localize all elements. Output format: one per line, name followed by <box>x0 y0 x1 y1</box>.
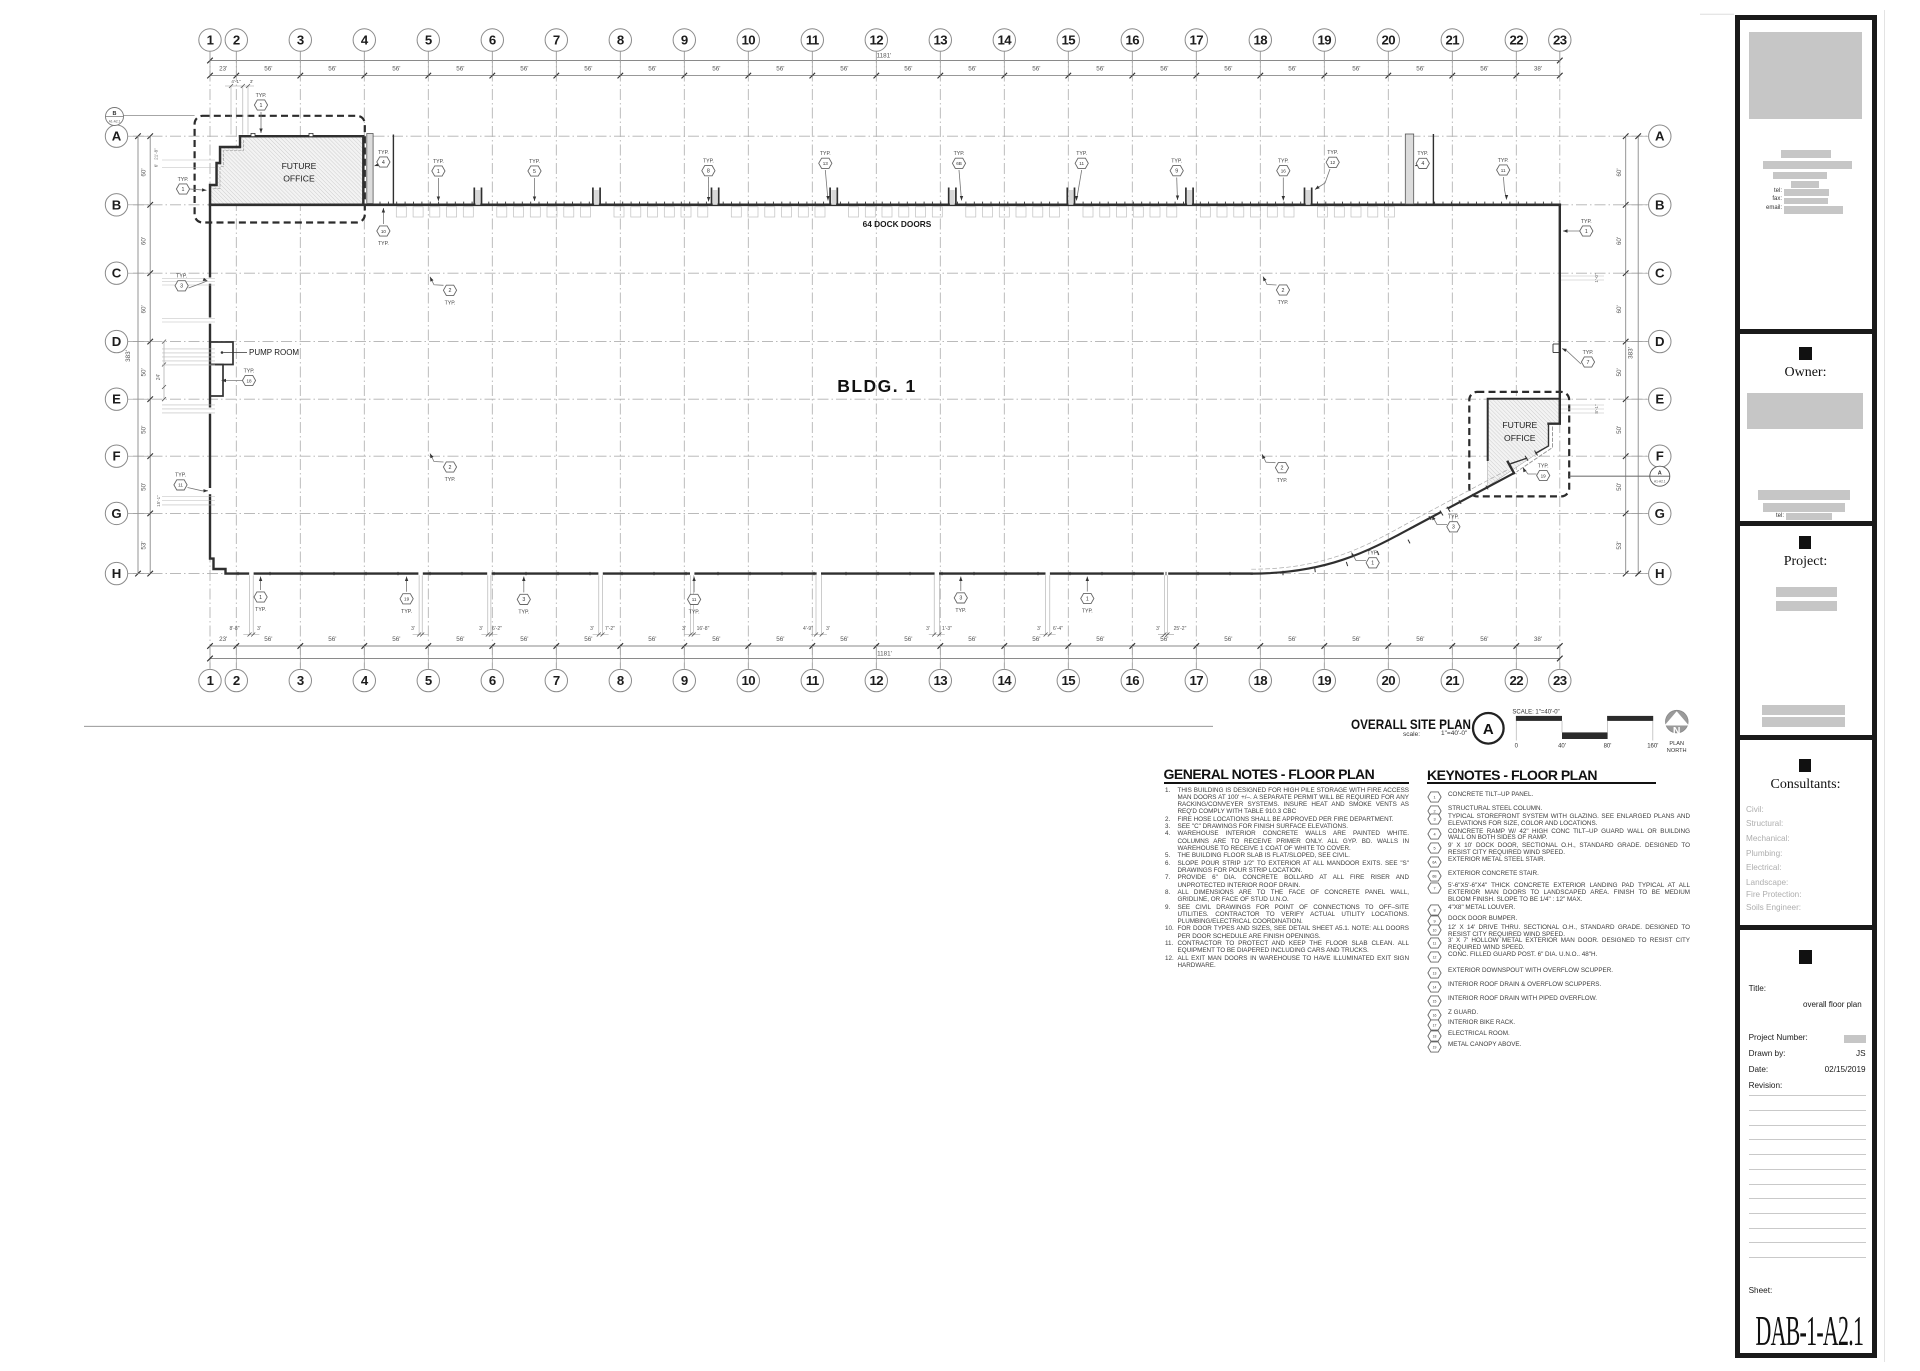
svg-text:50': 50' <box>1616 426 1623 434</box>
svg-text:21: 21 <box>1445 33 1459 48</box>
svg-text:E: E <box>112 392 121 407</box>
svg-text:3': 3' <box>411 626 415 632</box>
svg-text:3: 3 <box>522 597 525 603</box>
svg-text:56': 56' <box>968 65 976 72</box>
svg-text:60': 60' <box>1616 237 1623 245</box>
svg-text:56': 56' <box>1032 65 1040 72</box>
svg-text:4: 4 <box>1433 832 1435 836</box>
svg-text:2: 2 <box>449 465 452 471</box>
svg-text:3': 3' <box>590 626 594 632</box>
svg-text:7: 7 <box>553 673 560 688</box>
svg-text:18: 18 <box>1253 33 1267 48</box>
svg-text:23': 23' <box>219 65 227 72</box>
svg-text:19: 19 <box>1317 673 1331 688</box>
svg-text:56': 56' <box>1224 636 1232 643</box>
svg-text:38': 38' <box>1534 636 1542 643</box>
svg-text:10: 10 <box>1433 928 1437 932</box>
svg-text:TYP.: TYP. <box>1082 609 1093 615</box>
svg-text:5: 5 <box>425 33 432 48</box>
svg-text:BLDG. 1: BLDG. 1 <box>837 376 917 396</box>
svg-text:TYP.: TYP. <box>178 177 189 183</box>
svg-text:scale:: scale: <box>1403 731 1420 738</box>
svg-text:56': 56' <box>1032 636 1040 643</box>
svg-text:1: 1 <box>1585 229 1588 235</box>
svg-text:56': 56' <box>1416 65 1424 72</box>
svg-text:56': 56' <box>1096 65 1104 72</box>
svg-text:6: 6 <box>489 673 496 688</box>
svg-text:15'-1": 15'-1" <box>156 495 161 507</box>
svg-text:G: G <box>1655 506 1665 521</box>
svg-text:56': 56' <box>840 636 848 643</box>
svg-text:56': 56' <box>584 65 592 72</box>
svg-text:OFFICE: OFFICE <box>283 174 315 184</box>
svg-text:TYP.: TYP. <box>1583 350 1594 356</box>
svg-text:11: 11 <box>806 673 819 688</box>
svg-text:9: 9 <box>1175 169 1178 175</box>
svg-text:5: 5 <box>533 169 536 175</box>
svg-text:18: 18 <box>1253 673 1267 688</box>
svg-text:23: 23 <box>1553 673 1567 688</box>
svg-text:13: 13 <box>823 161 829 166</box>
svg-text:F: F <box>1656 449 1664 464</box>
svg-text:F: F <box>112 449 120 464</box>
svg-text:12: 12 <box>869 33 883 48</box>
svg-text:3: 3 <box>180 284 183 290</box>
svg-text:15: 15 <box>1433 999 1437 1003</box>
svg-text:19: 19 <box>404 597 410 602</box>
svg-text:56': 56' <box>712 65 720 72</box>
svg-text:1: 1 <box>259 595 262 601</box>
svg-text:383': 383' <box>125 350 132 362</box>
svg-text:11: 11 <box>692 597 697 602</box>
svg-text:TYP.: TYP. <box>1278 300 1289 306</box>
svg-text:4: 4 <box>361 673 369 688</box>
svg-text:17: 17 <box>1433 1024 1437 1028</box>
svg-text:56': 56' <box>520 636 528 643</box>
svg-text:1'-0": 1'-0" <box>1594 273 1599 283</box>
svg-text:1181': 1181' <box>877 52 892 59</box>
svg-text:A: A <box>112 129 122 144</box>
svg-text:1: 1 <box>437 169 440 175</box>
svg-text:16: 16 <box>1281 169 1287 174</box>
svg-text:18: 18 <box>1433 1034 1437 1038</box>
svg-text:56': 56' <box>648 636 656 643</box>
svg-text:8'-8": 8'-8" <box>230 626 240 632</box>
svg-text:TYP.: TYP. <box>1581 219 1592 225</box>
svg-text:B: B <box>112 197 122 212</box>
svg-text:20: 20 <box>1381 33 1395 48</box>
svg-text:3': 3' <box>826 626 830 632</box>
svg-text:TYP.: TYP. <box>954 151 965 157</box>
svg-text:8'-1": 8'-1" <box>1594 404 1599 414</box>
svg-text:3': 3' <box>250 79 254 85</box>
svg-text:4'-9": 4'-9" <box>803 626 813 632</box>
svg-text:A1-A2.1: A1-A2.1 <box>1654 480 1666 484</box>
svg-text:50': 50' <box>141 426 148 434</box>
svg-text:3': 3' <box>1037 626 1041 632</box>
svg-text:53': 53' <box>1616 541 1623 549</box>
svg-text:12: 12 <box>1330 160 1336 165</box>
svg-text:11: 11 <box>1079 161 1084 166</box>
svg-text:1181': 1181' <box>877 650 892 657</box>
svg-text:383': 383' <box>1627 347 1634 359</box>
svg-text:TYP.: TYP. <box>378 150 389 156</box>
svg-text:7: 7 <box>1587 360 1590 366</box>
svg-text:TYP.: TYP. <box>955 608 966 614</box>
svg-text:56': 56' <box>264 636 272 643</box>
svg-text:7'-2": 7'-2" <box>605 626 615 632</box>
svg-text:3: 3 <box>1433 818 1435 822</box>
svg-text:19: 19 <box>1433 1045 1437 1049</box>
svg-text:3: 3 <box>297 33 304 48</box>
svg-text:TYP.: TYP. <box>401 609 412 615</box>
svg-text:TYP.: TYP. <box>1417 151 1428 157</box>
svg-text:TYP.: TYP. <box>1277 478 1288 484</box>
svg-text:1: 1 <box>260 103 263 109</box>
svg-text:50': 50' <box>1616 368 1623 376</box>
svg-text:160': 160' <box>1647 744 1658 750</box>
svg-text:B: B <box>113 111 117 117</box>
svg-text:56': 56' <box>392 636 400 643</box>
svg-text:10: 10 <box>381 229 387 234</box>
svg-text:SCALE: 1"=40'-0": SCALE: 1"=40'-0" <box>1512 709 1559 715</box>
svg-text:2: 2 <box>233 673 240 688</box>
svg-text:16: 16 <box>1433 1014 1437 1018</box>
svg-text:6A: 6A <box>1432 861 1437 865</box>
svg-text:12: 12 <box>869 673 883 688</box>
svg-text:13: 13 <box>933 33 947 48</box>
svg-text:40': 40' <box>1558 744 1566 750</box>
svg-text:16: 16 <box>1125 673 1139 688</box>
svg-text:3': 3' <box>257 626 261 632</box>
svg-text:8: 8 <box>1433 909 1435 913</box>
svg-text:6B: 6B <box>956 161 962 166</box>
svg-text:2: 2 <box>449 288 452 294</box>
svg-text:7: 7 <box>1433 887 1435 891</box>
svg-text:56': 56' <box>328 65 336 72</box>
svg-text:56': 56' <box>456 65 464 72</box>
svg-text:56': 56' <box>1160 636 1168 643</box>
svg-text:A: A <box>1483 721 1494 738</box>
svg-text:1: 1 <box>207 33 214 48</box>
svg-text:FUTURE: FUTURE <box>282 161 317 171</box>
svg-text:17: 17 <box>1189 673 1203 688</box>
svg-text:TYP.: TYP. <box>1278 159 1289 165</box>
svg-text:10: 10 <box>741 673 755 688</box>
svg-text:TYP.: TYP. <box>256 93 267 99</box>
svg-text:TYP.: TYP. <box>1367 551 1378 557</box>
svg-text:4: 4 <box>382 160 385 166</box>
svg-text:6B: 6B <box>1432 875 1437 879</box>
svg-text:60': 60' <box>141 168 148 176</box>
svg-text:1"=40'-0": 1"=40'-0" <box>1441 730 1468 737</box>
svg-text:3: 3 <box>959 596 962 602</box>
svg-text:3': 3' <box>479 626 483 632</box>
svg-text:14: 14 <box>997 33 1012 48</box>
svg-text:20: 20 <box>1381 673 1395 688</box>
svg-text:56': 56' <box>1096 636 1104 643</box>
svg-text:2: 2 <box>1281 466 1284 472</box>
svg-text:25'-2": 25'-2" <box>1174 626 1187 632</box>
svg-text:56': 56' <box>1480 636 1488 643</box>
svg-text:21'-8": 21'-8" <box>154 148 159 160</box>
svg-text:56': 56' <box>712 636 720 643</box>
svg-text:3: 3 <box>1452 525 1455 531</box>
svg-text:50': 50' <box>141 483 148 491</box>
svg-text:TYP.: TYP. <box>1327 150 1338 156</box>
svg-text:16'-8": 16'-8" <box>697 626 710 632</box>
svg-text:1: 1 <box>1371 561 1374 567</box>
svg-text:TYP.: TYP. <box>175 473 186 479</box>
svg-text:3': 3' <box>1156 626 1160 632</box>
svg-text:6: 6 <box>489 33 496 48</box>
svg-text:56': 56' <box>968 636 976 643</box>
svg-text:1'-3": 1'-3" <box>942 626 952 632</box>
svg-text:PUMP ROOM: PUMP ROOM <box>249 348 299 357</box>
svg-text:56': 56' <box>1352 636 1360 643</box>
svg-text:TYP.: TYP. <box>1538 463 1549 469</box>
svg-text:13: 13 <box>933 673 947 688</box>
svg-text:G: G <box>111 506 121 521</box>
svg-text:N: N <box>1673 725 1681 737</box>
svg-text:TYP.: TYP. <box>445 477 456 483</box>
svg-text:22: 22 <box>1509 33 1523 48</box>
svg-text:H: H <box>1655 566 1665 581</box>
svg-text:11: 11 <box>806 33 819 48</box>
svg-text:56': 56' <box>1352 65 1360 72</box>
svg-text:56': 56' <box>904 636 912 643</box>
svg-text:A1-A2.1: A1-A2.1 <box>109 119 121 123</box>
svg-text:TYP.: TYP. <box>255 607 266 613</box>
svg-text:A: A <box>1655 129 1665 144</box>
svg-text:13: 13 <box>1433 971 1437 975</box>
svg-text:4: 4 <box>1421 161 1424 167</box>
svg-text:TYP.: TYP. <box>176 274 187 280</box>
svg-text:TYP.: TYP. <box>529 159 540 165</box>
svg-text:1: 1 <box>1086 596 1089 602</box>
svg-text:56': 56' <box>584 636 592 643</box>
svg-text:60': 60' <box>141 237 148 245</box>
svg-text:11: 11 <box>1433 942 1437 946</box>
svg-text:1: 1 <box>182 187 185 193</box>
svg-text:8: 8 <box>707 169 710 175</box>
svg-text:B: B <box>1655 197 1665 212</box>
svg-text:56': 56' <box>1480 65 1488 72</box>
svg-text:1: 1 <box>1433 796 1435 800</box>
svg-text:50': 50' <box>1616 483 1623 491</box>
svg-text:TYP.: TYP. <box>1498 158 1509 164</box>
svg-text:56': 56' <box>456 636 464 643</box>
svg-text:56': 56' <box>776 636 784 643</box>
svg-text:2: 2 <box>1282 288 1285 294</box>
svg-text:C: C <box>1655 266 1665 281</box>
svg-text:5: 5 <box>1433 846 1435 850</box>
svg-text:D: D <box>112 334 122 349</box>
svg-text:64 DOCK DOORS: 64 DOCK DOORS <box>863 219 932 229</box>
svg-text:56': 56' <box>1288 65 1296 72</box>
svg-text:21: 21 <box>1445 673 1459 688</box>
svg-text:56': 56' <box>1416 636 1424 643</box>
svg-text:15: 15 <box>1061 33 1075 48</box>
svg-text:18: 18 <box>246 378 252 383</box>
svg-text:56': 56' <box>264 65 272 72</box>
svg-text:56': 56' <box>648 65 656 72</box>
svg-text:TYP.: TYP. <box>1076 151 1087 157</box>
svg-text:56': 56' <box>1288 636 1296 643</box>
svg-text:3': 3' <box>682 626 686 632</box>
svg-text:12: 12 <box>1433 956 1437 960</box>
svg-text:0: 0 <box>1515 744 1519 750</box>
svg-text:6'-4": 6'-4" <box>1053 626 1063 632</box>
svg-text:56': 56' <box>776 65 784 72</box>
svg-text:1: 1 <box>207 673 214 688</box>
svg-text:6': 6' <box>154 164 159 168</box>
svg-text:6'-2": 6'-2" <box>492 626 502 632</box>
svg-text:11: 11 <box>1501 168 1506 173</box>
svg-text:PLAN: PLAN <box>1669 741 1684 747</box>
svg-text:5: 5 <box>425 673 432 688</box>
svg-text:60': 60' <box>1616 305 1623 313</box>
svg-text:TYP.: TYP. <box>433 159 444 165</box>
svg-text:38': 38' <box>1534 65 1542 72</box>
svg-text:TYP.: TYP. <box>378 241 389 247</box>
svg-text:56': 56' <box>840 65 848 72</box>
svg-text:14: 14 <box>1433 985 1437 989</box>
svg-text:60': 60' <box>1616 168 1623 176</box>
svg-text:15: 15 <box>1061 673 1075 688</box>
svg-text:23: 23 <box>1553 33 1567 48</box>
svg-text:10: 10 <box>741 33 755 48</box>
svg-text:8: 8 <box>617 33 624 48</box>
svg-text:E: E <box>1655 392 1664 407</box>
svg-text:56': 56' <box>1160 65 1168 72</box>
svg-text:56': 56' <box>904 65 912 72</box>
svg-text:56': 56' <box>392 65 400 72</box>
svg-text:D: D <box>1655 334 1665 349</box>
svg-text:80': 80' <box>1604 744 1612 750</box>
svg-text:60': 60' <box>141 305 148 313</box>
svg-text:56': 56' <box>1224 65 1232 72</box>
svg-text:8: 8 <box>617 673 624 688</box>
svg-text:9: 9 <box>681 673 688 688</box>
svg-text:7: 7 <box>553 33 560 48</box>
svg-text:TYP.: TYP. <box>518 610 529 616</box>
svg-text:16: 16 <box>1125 33 1139 48</box>
svg-text:NORTH: NORTH <box>1667 748 1687 754</box>
svg-text:TYP.: TYP. <box>445 301 456 307</box>
svg-text:24': 24' <box>156 374 162 381</box>
svg-text:C: C <box>112 266 122 281</box>
svg-text:14: 14 <box>997 673 1012 688</box>
svg-text:TYP.: TYP. <box>1171 159 1182 165</box>
svg-text:3': 3' <box>926 626 930 632</box>
svg-text:3: 3 <box>297 673 304 688</box>
svg-text:TYP.: TYP. <box>703 159 714 165</box>
svg-text:56': 56' <box>520 65 528 72</box>
svg-text:19: 19 <box>1541 473 1547 478</box>
svg-text:FUTURE: FUTURE <box>1502 420 1537 430</box>
svg-text:TYP.: TYP. <box>689 610 700 616</box>
svg-text:23': 23' <box>219 636 227 643</box>
svg-text:19: 19 <box>1317 33 1331 48</box>
svg-text:2: 2 <box>233 33 240 48</box>
svg-text:17: 17 <box>1189 33 1203 48</box>
svg-text:4: 4 <box>361 33 369 48</box>
svg-text:H: H <box>112 566 122 581</box>
svg-text:53': 53' <box>141 541 148 549</box>
svg-text:A: A <box>1658 470 1662 476</box>
svg-text:11: 11 <box>178 483 183 488</box>
svg-text:TYP.: TYP. <box>820 151 831 157</box>
svg-text:50': 50' <box>141 368 148 376</box>
svg-text:OFFICE: OFFICE <box>1504 433 1536 443</box>
svg-text:TYP.: TYP. <box>1448 515 1459 521</box>
svg-text:4'-1": 4'-1" <box>231 79 241 85</box>
svg-text:9: 9 <box>681 33 688 48</box>
svg-text:TYP.: TYP. <box>244 368 255 374</box>
svg-text:22: 22 <box>1509 673 1523 688</box>
svg-text:56': 56' <box>328 636 336 643</box>
